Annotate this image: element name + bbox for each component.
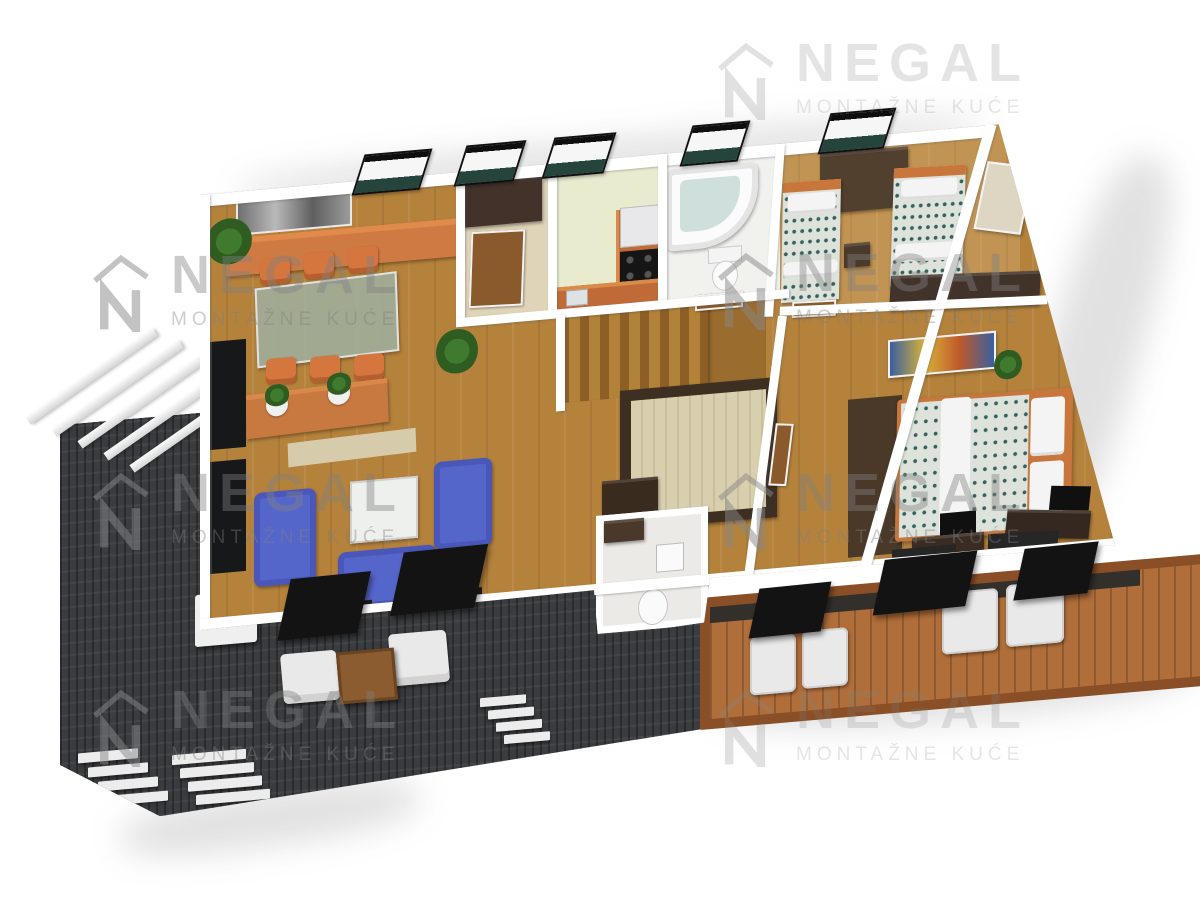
balcony-lounge-chair — [750, 634, 796, 696]
dining-chair — [354, 353, 384, 382]
hall-door — [469, 229, 526, 308]
kids-bed-pillow — [901, 177, 958, 200]
watermark-tagline: MONTAŽNE KUĆE — [796, 744, 1030, 766]
watermark: NEGAL MONTAŽNE KUĆE — [718, 38, 1030, 120]
negal-house-logo-icon — [93, 252, 149, 332]
terrace-step — [98, 776, 158, 791]
black-sling-chair — [277, 571, 371, 641]
terrace-step — [108, 791, 168, 806]
master-wall-art — [888, 331, 996, 379]
watermark-text: NEGAL MONTAŽNE KUĆE — [796, 38, 1030, 119]
wall-left — [200, 194, 210, 630]
dining-chair — [304, 251, 334, 280]
kids-stool — [844, 242, 870, 268]
watermark-brand: NEGAL — [796, 38, 1030, 89]
black-sling-chair — [390, 544, 488, 616]
terrace-step — [88, 762, 148, 777]
black-sling-chair — [749, 581, 832, 638]
black-sling-chair — [1013, 541, 1098, 600]
black-sling-chair — [873, 550, 978, 615]
terrace-coffee-table — [336, 648, 398, 705]
stair-landing — [708, 295, 766, 392]
master-plant — [994, 348, 1022, 380]
window-living-room — [352, 148, 433, 195]
master-desk-chair — [940, 510, 976, 535]
dining-chair — [266, 357, 296, 386]
wall-kitchen-bath — [658, 154, 667, 307]
terrace-step — [504, 731, 550, 744]
terrace-step — [488, 707, 534, 720]
negal-house-logo-icon — [718, 40, 774, 120]
kids-bed-pillow — [787, 191, 835, 214]
wall-tv-panel — [208, 459, 246, 574]
wall-tv-panel — [208, 339, 246, 450]
terrace-step — [78, 748, 138, 763]
master-bed-pillow — [1030, 396, 1065, 456]
wc-vanity — [604, 518, 644, 544]
wc-sink — [656, 542, 684, 572]
coffee-table — [350, 476, 418, 544]
dining-chair — [260, 257, 290, 286]
kids-bed — [781, 179, 841, 303]
terrace-cube-chair — [388, 630, 450, 687]
kitchen-sink — [566, 289, 588, 307]
dining-chair — [348, 245, 378, 274]
blue-armchair — [434, 457, 492, 550]
wall-hall-kitchen — [548, 163, 557, 316]
terrace-cube-chair — [280, 650, 340, 705]
living-room-floor-plant — [436, 326, 478, 376]
wall-stairs-left — [556, 315, 565, 412]
terrace-step — [496, 719, 542, 732]
house-ground-floor — [200, 114, 1115, 630]
floor-cushions — [288, 428, 417, 468]
extractor-hood — [620, 204, 662, 248]
blue-sofa — [254, 488, 316, 587]
wall-living-hall — [456, 172, 465, 325]
balcony-lounge-chair — [802, 627, 848, 689]
floor-plan-render: NEGAL MONTAŽNE KUĆE { "watermark": { "br… — [0, 0, 1200, 900]
terrace-step — [480, 694, 526, 707]
master-desk-chair — [1049, 486, 1091, 511]
